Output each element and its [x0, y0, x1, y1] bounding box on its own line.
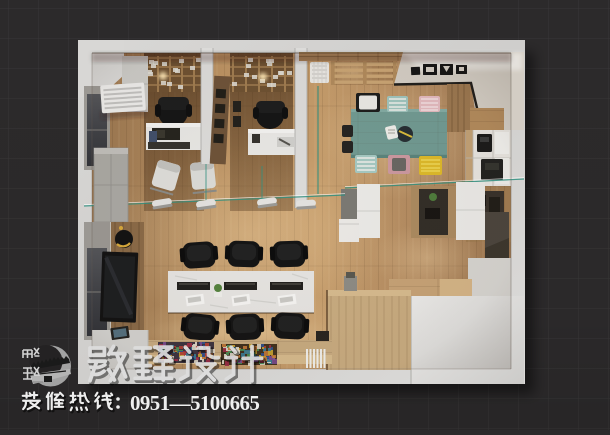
svg-text:0951—5100665: 0951—5100665 [130, 391, 259, 415]
